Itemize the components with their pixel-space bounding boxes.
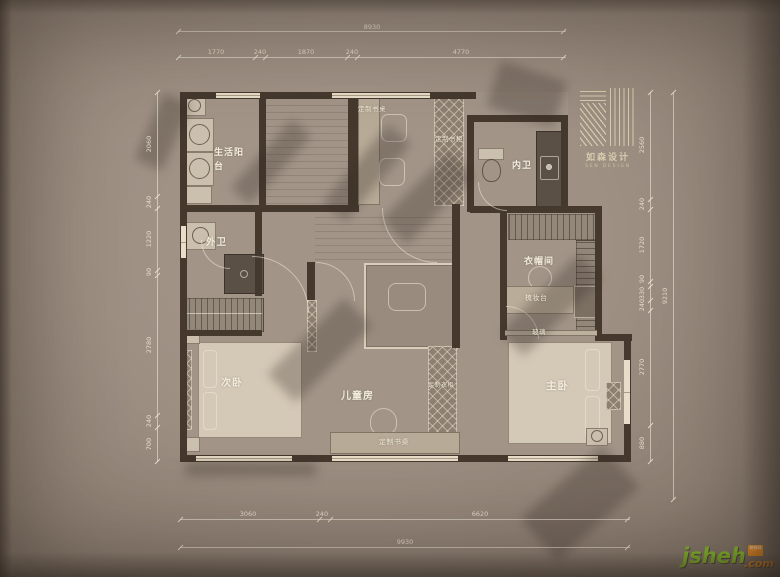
kids-chair — [370, 408, 397, 435]
dim-value: 2060 — [145, 124, 153, 164]
room-label-master-bath: 内卫 — [512, 158, 532, 171]
pillow — [203, 350, 217, 388]
floorplan-canvas: 生活阳台 外卫 次卧 儿童房 主卧 内卫 衣帽间 定制书桌 定制书柜 定制衣柜 … — [0, 0, 780, 577]
dim-value: 240 — [145, 182, 153, 222]
watermark-brand: jsheh — [682, 544, 746, 568]
logo-stripes-diagonal — [580, 103, 606, 146]
master-stool-top — [591, 430, 603, 442]
window — [332, 456, 458, 461]
dim-value: 240 — [638, 285, 646, 325]
room-label-cloakroom: 衣帽间 — [524, 254, 554, 267]
dim-value: 2770 — [638, 347, 646, 387]
room-label-second-bedroom: 次卧 — [221, 374, 243, 389]
window — [196, 456, 292, 461]
dim-line — [180, 519, 630, 520]
shower-drain — [240, 270, 248, 278]
window — [624, 360, 630, 424]
vignette-right — [742, 0, 780, 577]
shadow — [520, 445, 639, 560]
room-label-master-bedroom: 主卧 — [546, 378, 569, 393]
designer-logo: 如森设计 SEN DESIGN — [580, 88, 636, 180]
dim-tick — [648, 459, 654, 465]
dim-value: 1870 — [286, 48, 326, 56]
dim-line — [650, 92, 651, 462]
dim-line — [157, 92, 158, 462]
logo-name-cn: 如森设计 — [580, 150, 636, 163]
label-wardrobe: 定制衣柜 — [428, 380, 454, 389]
wall-left — [180, 92, 187, 462]
dim-tick — [671, 497, 677, 503]
pillow — [203, 392, 217, 430]
window — [216, 93, 260, 98]
toilet-bowl — [482, 159, 501, 182]
label-vanity: 梳妆台 — [525, 293, 548, 303]
dim-bottom-total: 9930 — [385, 538, 425, 546]
dim-value: 880 — [638, 423, 646, 463]
watermark-badge: 装修网 — [748, 545, 763, 556]
dim-value: 700 — [145, 424, 153, 464]
dim-line — [180, 547, 630, 548]
master-right-hatch — [606, 382, 621, 410]
logo-stripes-vertical — [610, 88, 634, 146]
dim-line — [673, 92, 674, 500]
wall-neiwei-left — [467, 115, 474, 212]
pillow — [585, 349, 600, 391]
dim-line — [178, 31, 566, 32]
window — [181, 226, 186, 258]
dim-right-total: 9210 — [661, 276, 669, 316]
site-watermark: jsheh 装修网 .com — [682, 544, 778, 574]
dim-value: 90 — [145, 252, 153, 292]
logo-name-en: SEN DESIGN — [580, 164, 636, 169]
label-bookcase: 定制书柜 — [435, 133, 463, 143]
dim-top-total: 8930 — [352, 23, 392, 31]
room-label-guest-bath: 外卫 — [206, 234, 227, 248]
wall-master-jog — [595, 334, 632, 341]
room-label-kids-room: 儿童房 — [341, 387, 374, 402]
dim-value: 4770 — [441, 48, 481, 56]
shadow — [186, 462, 316, 476]
vignette-left — [0, 0, 12, 577]
wall-hanger-bottom — [180, 330, 262, 336]
wall-closet-top — [470, 206, 602, 213]
label-desk-bottom: 定制书桌 — [330, 437, 458, 447]
room-label-laundry-balcony: 生活阳台 — [214, 146, 248, 175]
hanger-divider — [182, 313, 262, 314]
dim-value: 2780 — [145, 325, 153, 365]
wall-right-upper — [561, 115, 568, 212]
dryer-drum — [189, 158, 210, 179]
shower-master-drain — [546, 164, 552, 170]
vignette-bottom — [0, 552, 780, 577]
window — [332, 93, 430, 98]
dim-value: 240 — [244, 48, 276, 56]
wardrobe-kids — [428, 346, 457, 434]
cloakroom-hanger-strip — [508, 214, 598, 240]
watermark-tld: .com — [744, 557, 774, 570]
label-glass: 玻璃 — [532, 326, 546, 336]
dim-value: 240 — [638, 184, 646, 224]
washer-drum — [189, 124, 210, 145]
dim-value: 3060 — [228, 510, 268, 518]
dim-value: 2560 — [638, 125, 646, 165]
label-desk-top: 定制书桌 — [358, 103, 386, 113]
dim-value: 1770 — [196, 48, 236, 56]
vignette-top — [0, 0, 780, 14]
kids-pillow — [388, 283, 426, 311]
dim-value: 6620 — [460, 510, 500, 518]
dim-tick — [155, 459, 161, 465]
dim-line — [178, 57, 566, 58]
wall-kids-right — [452, 204, 460, 348]
dim-value: 240 — [306, 510, 338, 518]
balcony-cabinet — [184, 186, 212, 204]
dim-value: 240 — [336, 48, 368, 56]
logo-stripes-horizontal — [580, 88, 606, 101]
wall-balcony-divider — [180, 205, 266, 212]
